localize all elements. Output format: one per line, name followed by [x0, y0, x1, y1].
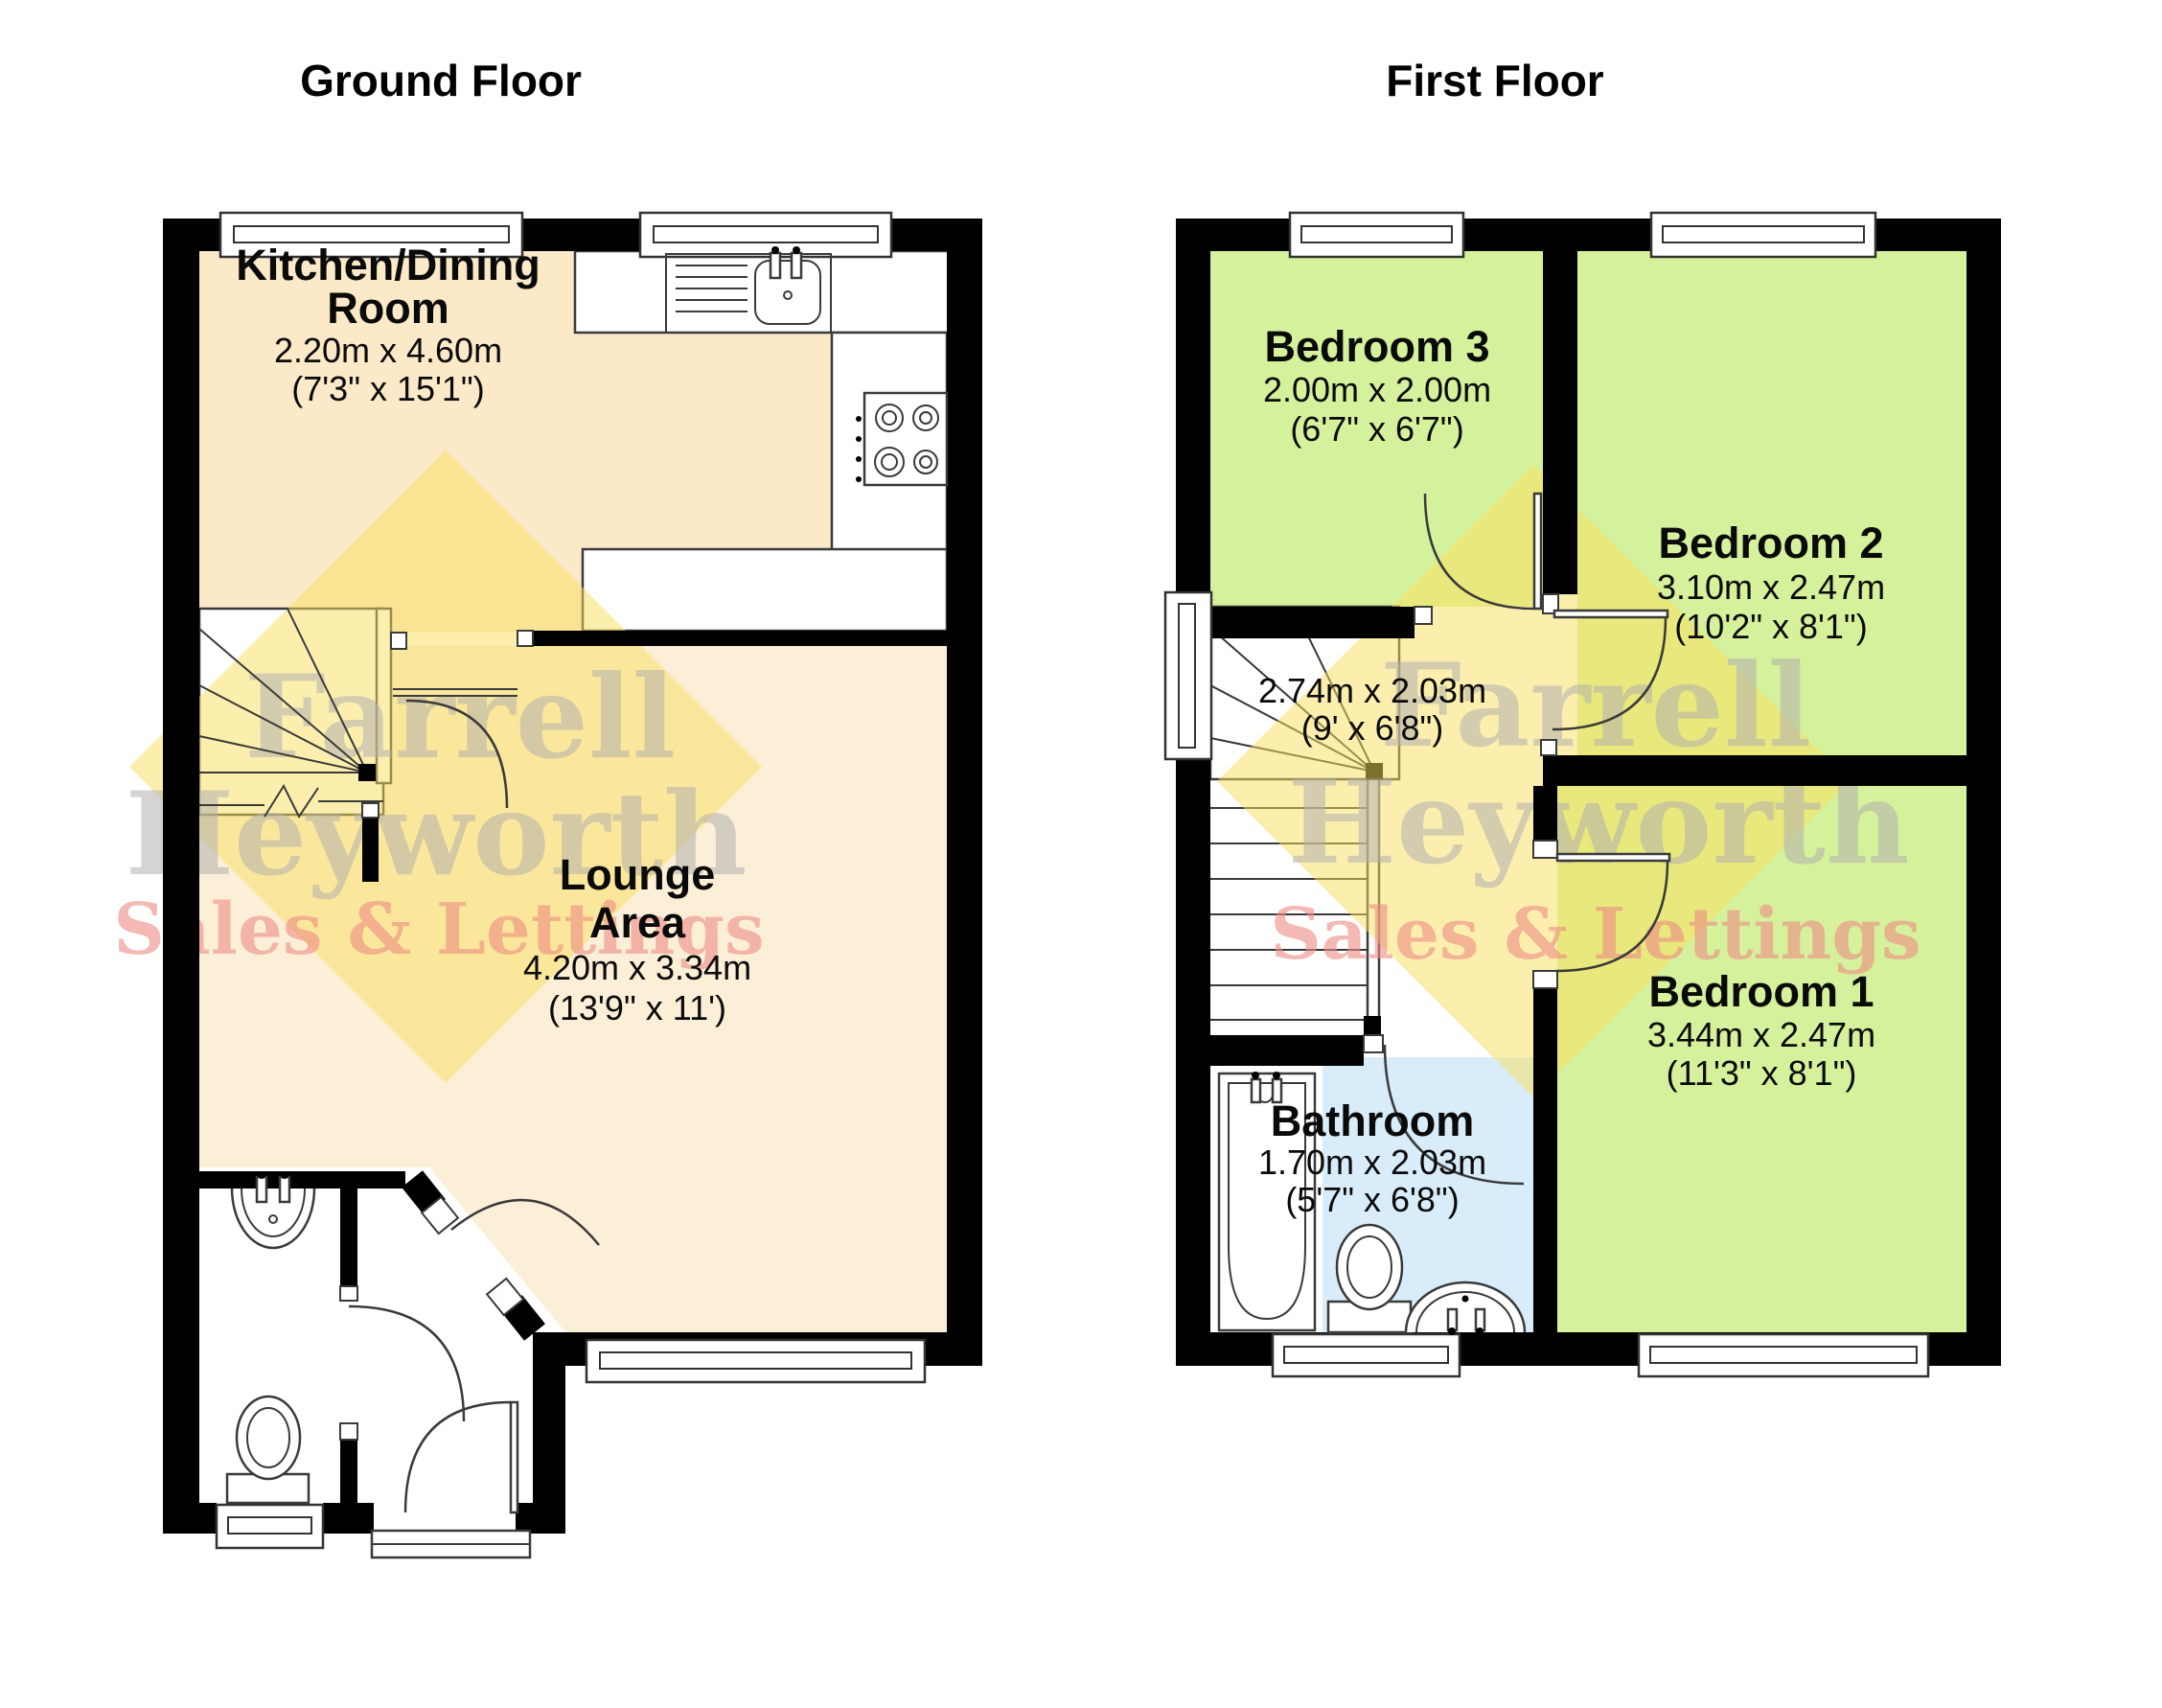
wall-stair-stub [362, 818, 379, 882]
wall-bed1-left-lower [1533, 988, 1557, 1332]
door-jamb [517, 631, 533, 646]
bathroom-name: Bathroom [1271, 1096, 1475, 1145]
wall-kitchen-lounge [517, 631, 947, 646]
floorplan-drawing: Farrell Heyworth Sales & Lettings [0, 0, 2162, 1708]
bedroom3-name: Bedroom 3 [1264, 322, 1489, 371]
bedroom3-door-leaf [1534, 494, 1541, 609]
bathroom-dim-metric: 1.70m x 2.03m [1258, 1143, 1486, 1182]
window-landing [1165, 592, 1211, 759]
bedroom3-dim-metric: 2.00m x 2.00m [1263, 370, 1491, 409]
bathroom-label: Bathroom 1.70m x 2.03m (5'7" x 6'8") [1258, 1096, 1486, 1219]
first-floor-plan: Farrell Heyworth Sales & Lettings [1165, 56, 2001, 1376]
stair-newel-post [1364, 1016, 1381, 1035]
wall-wc-partition-lower [340, 1440, 357, 1507]
bedroom3-label: Bedroom 3 2.00m x 2.00m (6'7" x 6'7") [1263, 322, 1491, 449]
bedroom1-name: Bedroom 1 [1648, 967, 1874, 1016]
wall-bathroom-top [1210, 1035, 1364, 1066]
bedroom3-dim-imperial: (6'7" x 6'7") [1290, 409, 1463, 449]
wall-first-left [1176, 219, 1210, 1366]
bedroom2-dim-imperial: (10'2" x 8'1") [1674, 607, 1867, 646]
landing-dim-metric: 2.74m x 2.03m [1258, 671, 1486, 710]
wall-ground-right [947, 219, 982, 1366]
window-bedroom2 [1651, 213, 1875, 257]
door-jamb [1533, 971, 1557, 988]
bedroom1-door-leaf [1557, 854, 1669, 861]
lounge-name: Lounge [560, 850, 715, 899]
tap-icon [1252, 1079, 1260, 1102]
bedroom2-dim-metric: 3.10m x 2.47m [1657, 567, 1885, 607]
door-jamb [1541, 740, 1556, 755]
wall-ground-bottom-left [163, 1503, 217, 1534]
floorplan-page: Farrell Heyworth Sales & Lettings [0, 0, 2162, 1708]
window-lounge-bottom [586, 1340, 925, 1382]
wall-hall-right [533, 1332, 565, 1534]
door-jamb [1414, 607, 1432, 624]
door-jamb [340, 1423, 357, 1440]
hob-icon [856, 393, 947, 485]
kitchen-dim-metric: 2.20m x 4.60m [274, 331, 502, 370]
lounge-dim-metric: 4.20m x 3.34m [523, 948, 751, 987]
bedroom2-name: Bedroom 2 [1658, 519, 1883, 567]
window-kitchen-right [640, 213, 891, 257]
door-jamb [391, 633, 406, 649]
kitchen-name: Kitchen/Dining [236, 241, 540, 289]
bedroom2-label: Bedroom 2 3.10m x 2.47m (10'2" x 8'1") [1657, 519, 1885, 646]
tap-icon [792, 253, 801, 278]
bedroom2-door-leaf [1554, 611, 1667, 617]
first-floor-title: First Floor [1386, 56, 1604, 105]
landing-dim-imperial: (9' x 6'8") [1301, 708, 1444, 748]
watermark-text-farrell: Farrell [244, 650, 676, 785]
wall-diagonal-lower [512, 1304, 535, 1332]
wall-first-right [1966, 219, 2001, 1366]
stair-newel-post [358, 764, 376, 781]
wall-wc-partition-upper [340, 1189, 357, 1286]
bedroom1-dim-metric: 3.44m x 2.47m [1647, 1015, 1875, 1054]
window-wc-bottom [217, 1505, 323, 1548]
ground-floor-plan: Farrell Heyworth Sales & Lettings [113, 56, 982, 1558]
door-jamb [362, 803, 379, 818]
kitchen-name-2: Room [327, 284, 449, 333]
wall-bed3-bed2 [1543, 251, 1577, 594]
tap-icon [770, 253, 780, 278]
wall-bed1-left-upper [1533, 786, 1557, 841]
bedroom1-dim-imperial: (11'3" x 8'1") [1667, 1053, 1857, 1093]
wall-diagonal-upper [412, 1179, 435, 1208]
bathroom-dim-imperial: (5'7" x 6'8") [1285, 1180, 1459, 1219]
window-bathroom [1273, 1334, 1460, 1376]
tap-icon [280, 1177, 289, 1202]
front-door-leaf [511, 1402, 517, 1512]
wall-ground-left [163, 219, 199, 1534]
kitchen-unit-divider [583, 549, 947, 631]
watermark-text-sales: Sales & Lettings [1270, 893, 1920, 976]
wall-ground-bottom-mid [323, 1503, 374, 1534]
ground-floor-title: Ground Floor [300, 56, 582, 105]
tap-icon [257, 1177, 266, 1202]
tap-icon [1448, 1309, 1457, 1330]
window-bedroom3 [1290, 213, 1463, 257]
door-jamb [1533, 841, 1557, 858]
wall-bed3-bottom [1210, 607, 1414, 638]
lounge-dim-imperial: (13'9" x 11') [548, 988, 726, 1027]
bedroom1-label: Bedroom 1 3.44m x 2.47m (11'3" x 8'1") [1647, 967, 1875, 1093]
kitchen-dim-imperial: (7'3" x 15'1") [291, 369, 484, 408]
door-jamb [340, 1286, 357, 1301]
wall-wc-top [199, 1171, 405, 1189]
tap-icon [1476, 1309, 1484, 1330]
wall-bed2-bed1 [1543, 755, 1968, 786]
door-jamb [1364, 1035, 1383, 1052]
window-bedroom1 [1639, 1334, 1928, 1376]
lounge-name-2: Area [589, 898, 686, 947]
